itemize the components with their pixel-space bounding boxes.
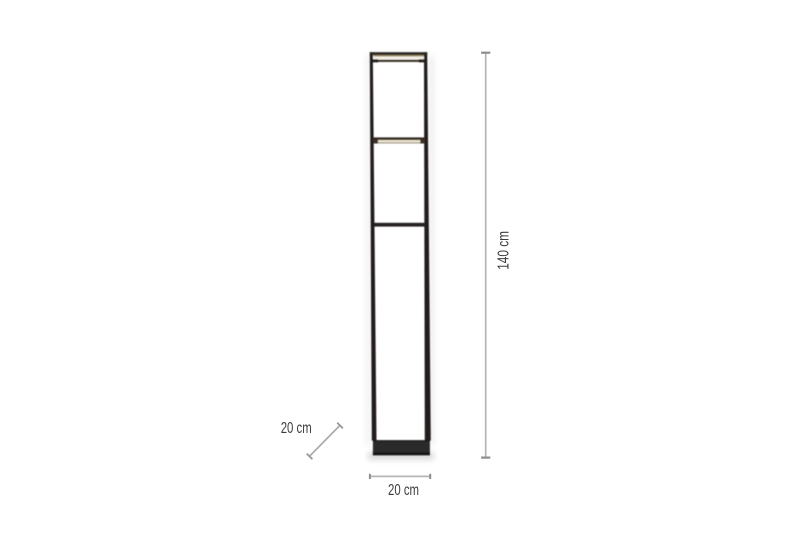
svg-text:20 cm: 20 cm <box>281 419 312 436</box>
svg-text:140 cm: 140 cm <box>494 231 512 270</box>
svg-text:20 cm: 20 cm <box>388 481 419 498</box>
